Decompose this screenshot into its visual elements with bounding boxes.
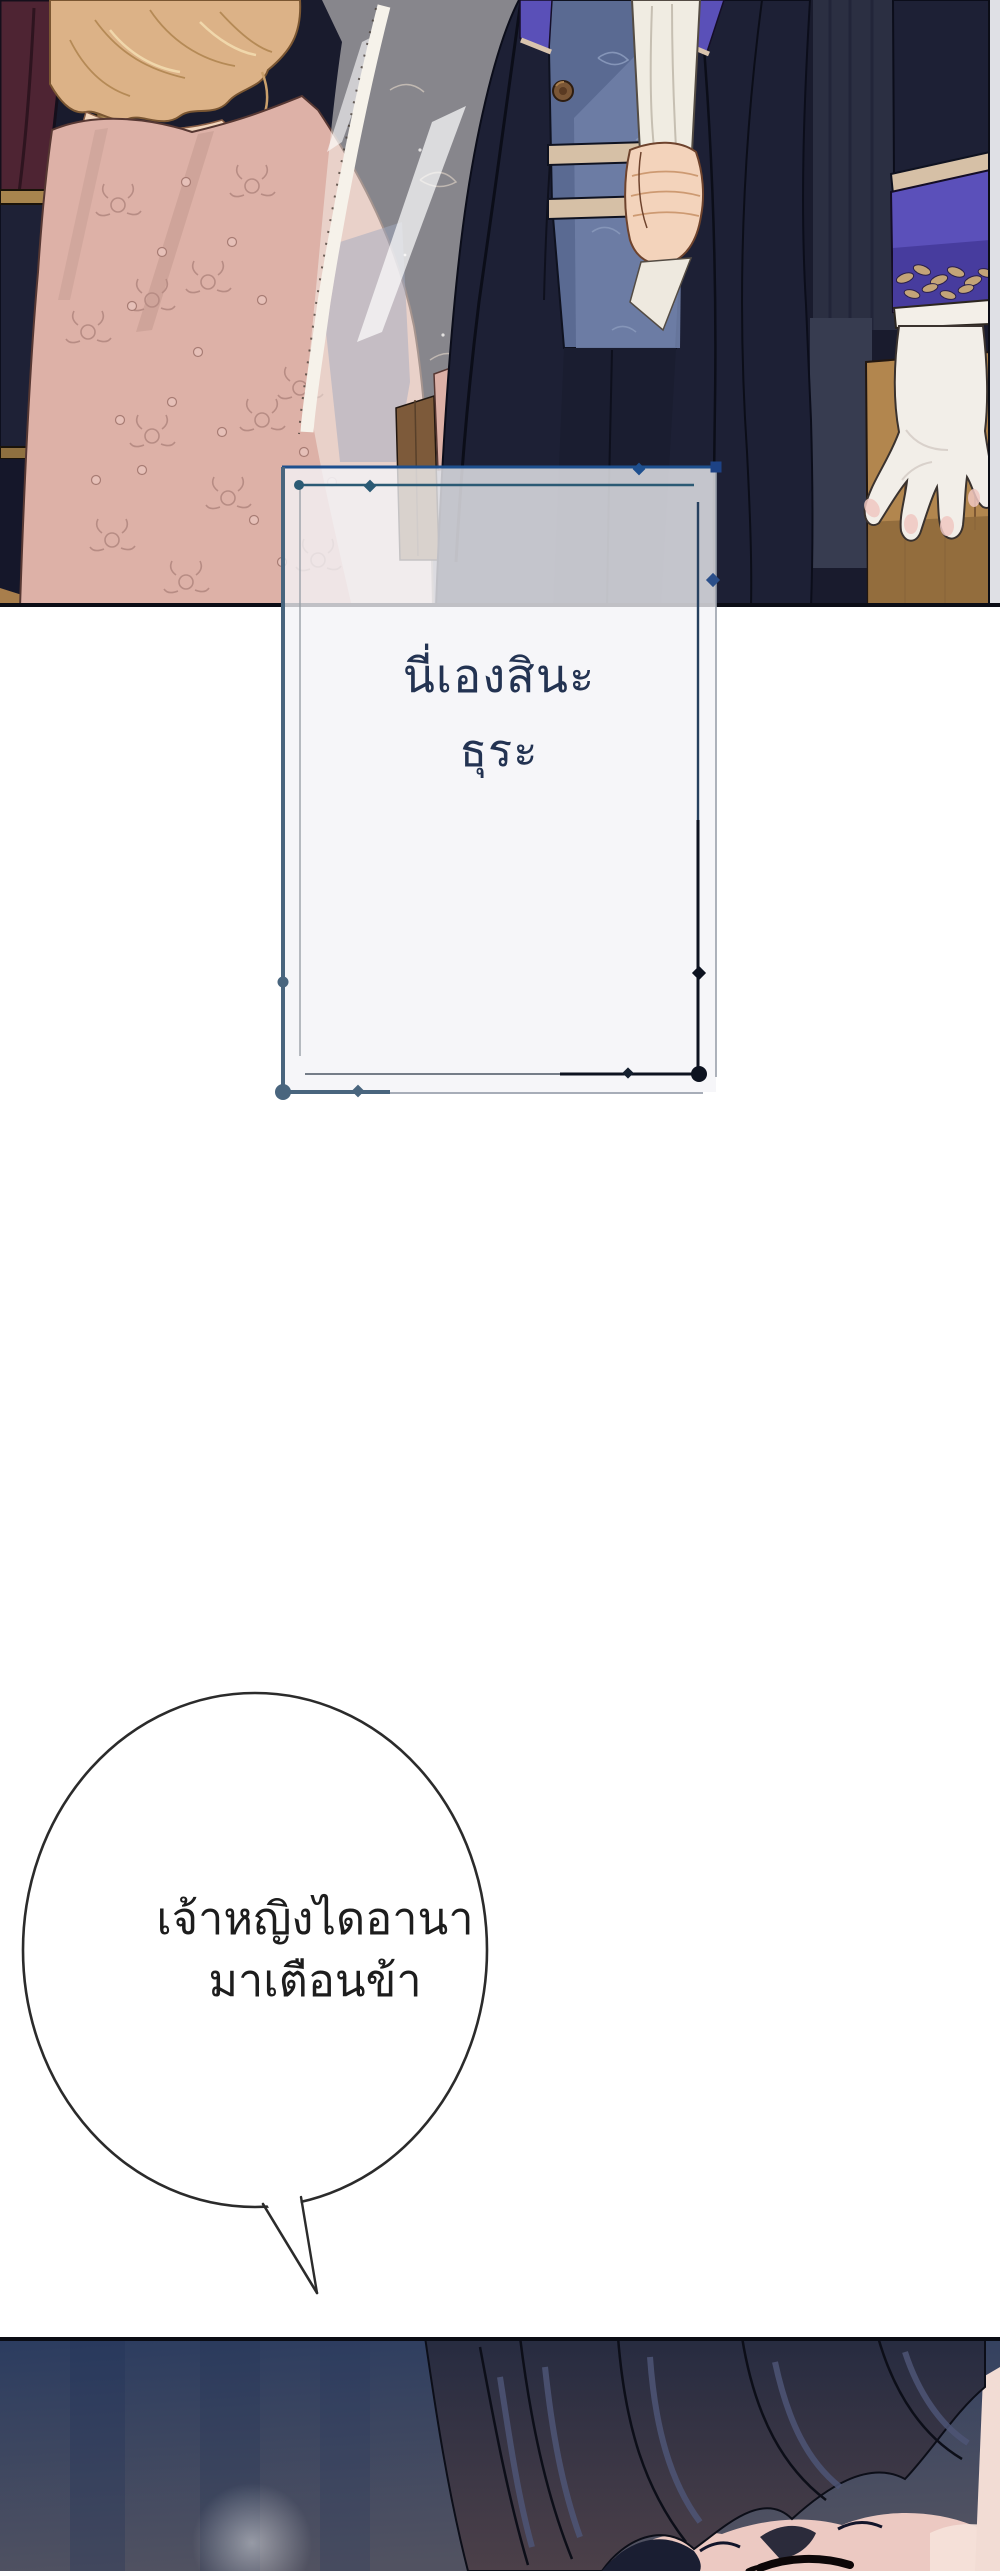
narration-box-frame: [0, 0, 1000, 1130]
narration-text: นี่เองสินะ ธุระ: [282, 640, 716, 920]
narration-box: [0, 0, 1000, 1130]
comic-page: นี่เองสินะ ธุระ เจ้าหญิงไดอานา มาเตือนข้…: [0, 0, 1000, 2571]
bottom-panel-illustration: [0, 2337, 1000, 2571]
bottom-panel: [0, 2337, 1000, 2571]
narration-line-1: นี่เองสินะ: [403, 640, 595, 714]
narration-line-2: ธุระ: [460, 714, 539, 788]
speech-bubble-text: เจ้าหญิงไดอานา มาเตือนข้า: [95, 1888, 535, 2012]
bottom-panel-top-edge: [0, 2337, 1000, 2341]
bubble-line-1: เจ้าหญิงไดอานา: [156, 1888, 473, 1950]
bubble-line-2: มาเตือนข้า: [208, 1950, 421, 2012]
